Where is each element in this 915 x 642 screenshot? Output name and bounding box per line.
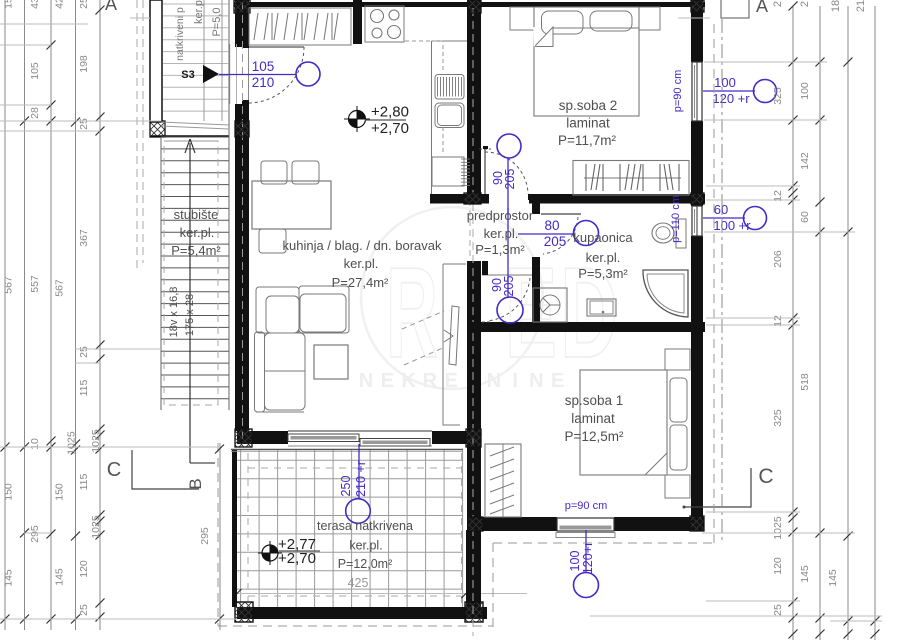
- svg-text:P=12,5m²: P=12,5m²: [565, 429, 624, 444]
- svg-text:325: 325: [772, 409, 784, 427]
- svg-text:557: 557: [29, 275, 41, 293]
- svg-text:K: K: [401, 370, 416, 392]
- svg-text:A: A: [756, 0, 768, 16]
- svg-text:P=11,7m²: P=11,7m²: [558, 133, 616, 148]
- svg-text:terasa natkrivena: terasa natkrivena: [317, 519, 413, 533]
- svg-text:sp.soba 2: sp.soba 2: [559, 98, 618, 113]
- svg-text:80: 80: [544, 218, 559, 233]
- svg-text:2: 2: [772, 1, 784, 7]
- svg-text:+2,70: +2,70: [278, 550, 316, 567]
- svg-text:sp.soba 1: sp.soba 1: [565, 393, 624, 408]
- svg-text:N: N: [529, 370, 543, 392]
- svg-text:28: 28: [29, 107, 41, 119]
- svg-text:1025: 1025: [66, 431, 78, 455]
- svg-text:R: R: [423, 370, 438, 392]
- svg-text:567: 567: [0, 276, 1, 294]
- svg-text:145: 145: [827, 569, 839, 587]
- svg-text:E: E: [505, 241, 557, 385]
- svg-text:205: 205: [544, 234, 567, 249]
- svg-text:205: 205: [503, 169, 517, 190]
- svg-text:25: 25: [78, 0, 90, 9]
- svg-text:S3: S3: [181, 69, 194, 81]
- svg-text:1025: 1025: [90, 515, 102, 539]
- svg-text:175 x 28: 175 x 28: [184, 294, 196, 336]
- svg-text:115: 115: [78, 379, 90, 396]
- svg-text:2: 2: [799, 1, 811, 7]
- svg-text:120 +r: 120 +r: [712, 91, 750, 106]
- svg-text:325: 325: [772, 87, 784, 105]
- svg-text:+2,70: +2,70: [371, 120, 409, 137]
- svg-text:25: 25: [78, 604, 90, 616]
- svg-text:R: R: [386, 241, 438, 385]
- svg-text:10: 10: [29, 438, 41, 450]
- svg-text:P=5,4m²: P=5,4m²: [171, 243, 221, 258]
- svg-text:295: 295: [199, 527, 211, 545]
- svg-text:100: 100: [568, 551, 582, 572]
- svg-text:198: 198: [78, 55, 90, 73]
- svg-text:150: 150: [0, 471, 1, 489]
- svg-text:567: 567: [3, 276, 15, 294]
- svg-text:43: 43: [29, 0, 41, 9]
- svg-text:P=5,0: P=5,0: [211, 7, 223, 36]
- svg-text:E: E: [551, 370, 564, 392]
- svg-text:N: N: [359, 370, 373, 392]
- svg-text:ker.p: ker.p: [193, 0, 205, 24]
- svg-text:ker.pl.: ker.pl.: [586, 250, 621, 265]
- svg-text:ker.pl.: ker.pl.: [344, 256, 379, 271]
- svg-text:C: C: [758, 465, 773, 488]
- svg-text:25: 25: [78, 118, 90, 130]
- svg-text:142: 142: [799, 152, 811, 170]
- svg-text:I: I: [512, 370, 518, 392]
- svg-text:100: 100: [799, 82, 811, 100]
- svg-text:100: 100: [714, 75, 736, 90]
- svg-text:P=5,3m²: P=5,3m²: [578, 266, 628, 281]
- svg-text:120: 120: [772, 557, 784, 575]
- svg-text:150: 150: [54, 483, 66, 501]
- svg-text:stubište: stubište: [174, 207, 219, 222]
- svg-text:60: 60: [799, 211, 811, 223]
- svg-text:kupaonica: kupaonica: [573, 230, 633, 245]
- svg-text:15: 15: [3, 0, 15, 9]
- svg-text:518: 518: [799, 373, 811, 391]
- svg-text:21: 21: [855, 0, 867, 12]
- svg-text:115: 115: [78, 473, 90, 490]
- svg-text:18: 18: [830, 0, 842, 12]
- svg-text:kuhinja / blag. / dn. boravak: kuhinja / blag. / dn. boravak: [283, 238, 442, 253]
- svg-text:laminat: laminat: [566, 116, 610, 131]
- svg-text:E: E: [445, 370, 458, 392]
- svg-text:A: A: [105, 0, 117, 14]
- svg-text:P=12,0m²: P=12,0m²: [338, 557, 393, 571]
- svg-text:367: 367: [78, 229, 90, 247]
- svg-text:18v x 16,8: 18v x 16,8: [168, 287, 180, 338]
- svg-text:ker.pl.: ker.pl.: [180, 225, 215, 240]
- svg-text:ker.pl.: ker.pl.: [484, 226, 519, 241]
- svg-text:P=27,4m²: P=27,4m²: [332, 275, 389, 290]
- svg-text:120: 120: [78, 560, 90, 578]
- svg-text:p=90 cm: p=90 cm: [672, 70, 684, 113]
- svg-text:120+r: 120+r: [581, 542, 595, 574]
- svg-text:25: 25: [772, 604, 784, 616]
- svg-text:60: 60: [714, 202, 728, 217]
- svg-text:natkriveni p: natkriveni p: [174, 7, 186, 61]
- svg-text:p=90 cm: p=90 cm: [565, 500, 608, 512]
- svg-text:425: 425: [348, 576, 369, 590]
- svg-text:145: 145: [54, 568, 66, 586]
- svg-text:205: 205: [502, 276, 516, 297]
- svg-text:206: 206: [772, 250, 784, 268]
- svg-text:laminat: laminat: [571, 411, 615, 426]
- svg-text:C: C: [107, 459, 121, 481]
- svg-text:295: 295: [29, 525, 41, 543]
- svg-text:210: 210: [252, 75, 275, 90]
- svg-text:B: B: [186, 478, 205, 489]
- svg-text:25: 25: [78, 346, 90, 358]
- svg-text:567: 567: [54, 279, 66, 297]
- svg-text:210 +r: 210 +r: [354, 461, 368, 497]
- svg-text:P=1,3m²: P=1,3m²: [475, 242, 525, 257]
- svg-text:145: 145: [799, 565, 811, 583]
- svg-text:ker.pl.: ker.pl.: [349, 539, 382, 553]
- svg-text:145: 145: [3, 569, 15, 587]
- svg-text:145: 145: [0, 568, 1, 586]
- svg-text:105: 105: [29, 62, 41, 80]
- svg-text:105: 105: [252, 59, 275, 74]
- svg-text:1025: 1025: [90, 429, 102, 453]
- svg-text:predprostor: predprostor: [467, 208, 534, 223]
- svg-text:E: E: [381, 370, 394, 392]
- svg-text:150: 150: [3, 483, 15, 501]
- svg-text:250: 250: [339, 476, 353, 497]
- svg-text:42: 42: [54, 0, 66, 9]
- svg-text:N: N: [487, 370, 501, 392]
- svg-text:p=110 cm: p=110 cm: [670, 195, 682, 243]
- svg-text:+2,80: +2,80: [371, 104, 409, 121]
- svg-text:1025: 1025: [772, 516, 784, 540]
